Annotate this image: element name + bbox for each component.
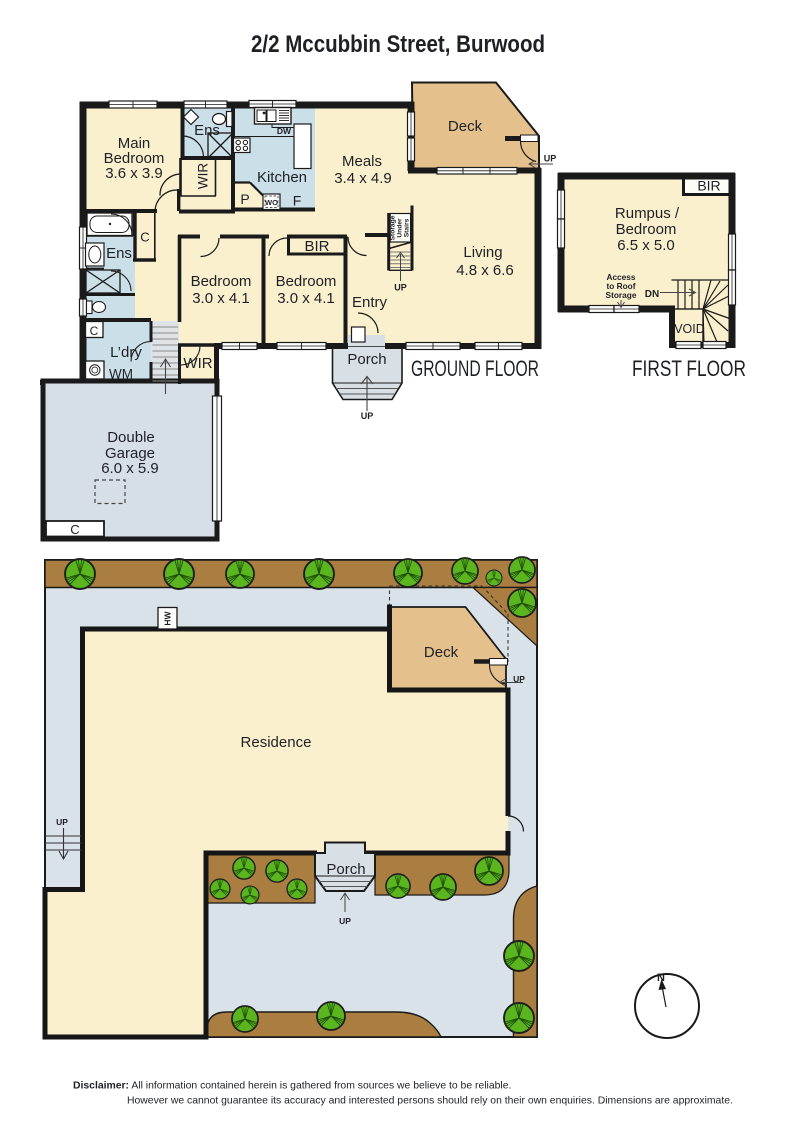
- svg-text:P: P: [240, 191, 249, 207]
- svg-text:UP: UP: [56, 817, 68, 827]
- svg-text:Porch: Porch: [326, 861, 365, 878]
- svg-text:Deck: Deck: [448, 118, 483, 135]
- svg-text:Ens: Ens: [106, 245, 132, 262]
- svg-text:Ens: Ens: [194, 122, 220, 139]
- svg-text:WIR: WIR: [196, 163, 211, 189]
- svg-text:Storage: Storage: [390, 215, 397, 240]
- svg-text:HW: HW: [163, 610, 173, 625]
- svg-text:6.5 x 5.0: 6.5 x 5.0: [617, 237, 675, 254]
- svg-text:Kitchen: Kitchen: [257, 169, 307, 186]
- svg-text:GROUND FLOOR: GROUND FLOOR: [411, 356, 539, 381]
- svg-text:C: C: [90, 324, 99, 338]
- svg-text:Entry: Entry: [352, 294, 388, 311]
- svg-text:Residence: Residence: [241, 734, 312, 751]
- svg-text:FIRST FLOOR: FIRST FLOOR: [632, 356, 746, 381]
- svg-text:UP: UP: [513, 674, 525, 684]
- svg-text:Deck: Deck: [424, 644, 459, 661]
- svg-text:DN: DN: [645, 289, 659, 300]
- svg-text:Bedroom: Bedroom: [276, 273, 337, 290]
- svg-text:UP: UP: [544, 154, 557, 164]
- svg-text:Disclaimer: All information co: Disclaimer: All information contained he…: [73, 1081, 511, 1092]
- svg-text:WM: WM: [109, 367, 133, 382]
- svg-text:UP: UP: [361, 411, 374, 421]
- svg-text:3.0 x 4.1: 3.0 x 4.1: [192, 290, 250, 307]
- svg-text:Under: Under: [397, 218, 404, 238]
- svg-text:3.0 x 4.1: 3.0 x 4.1: [277, 290, 335, 307]
- svg-text:6.0 x 5.9: 6.0 x 5.9: [101, 460, 159, 477]
- svg-text:UP: UP: [394, 283, 407, 293]
- svg-text:VOID: VOID: [674, 322, 705, 336]
- svg-text:Double: Double: [107, 429, 155, 446]
- svg-text:3.6 x 3.9: 3.6 x 3.9: [105, 165, 163, 182]
- svg-text:F: F: [293, 193, 302, 209]
- svg-text:Porch: Porch: [347, 351, 386, 368]
- svg-text:N: N: [657, 972, 665, 984]
- svg-text:Storage: Storage: [606, 290, 637, 300]
- svg-text:Meals: Meals: [342, 153, 382, 170]
- svg-text:UP: UP: [339, 916, 351, 926]
- svg-text:Living: Living: [463, 244, 502, 261]
- svg-text:C: C: [140, 230, 149, 245]
- svg-text:C: C: [70, 522, 79, 537]
- svg-text:Bedroom: Bedroom: [191, 273, 252, 290]
- svg-text:BIR: BIR: [304, 238, 329, 255]
- svg-text:However we cannot guarantee it: However we cannot guarantee its accuracy…: [127, 1095, 733, 1106]
- svg-text:4.8 x 6.6: 4.8 x 6.6: [456, 262, 514, 279]
- svg-text:WO: WO: [265, 198, 278, 207]
- svg-text:Stairs: Stairs: [404, 218, 411, 237]
- svg-text:2/2 Mccubbin Street, Burwood: 2/2 Mccubbin Street, Burwood: [251, 31, 545, 58]
- svg-text:Bedroom: Bedroom: [616, 221, 677, 238]
- svg-text:BIR: BIR: [697, 178, 720, 194]
- svg-text:Rumpus /: Rumpus /: [615, 205, 680, 222]
- svg-text:3.4 x 4.9: 3.4 x 4.9: [334, 170, 392, 187]
